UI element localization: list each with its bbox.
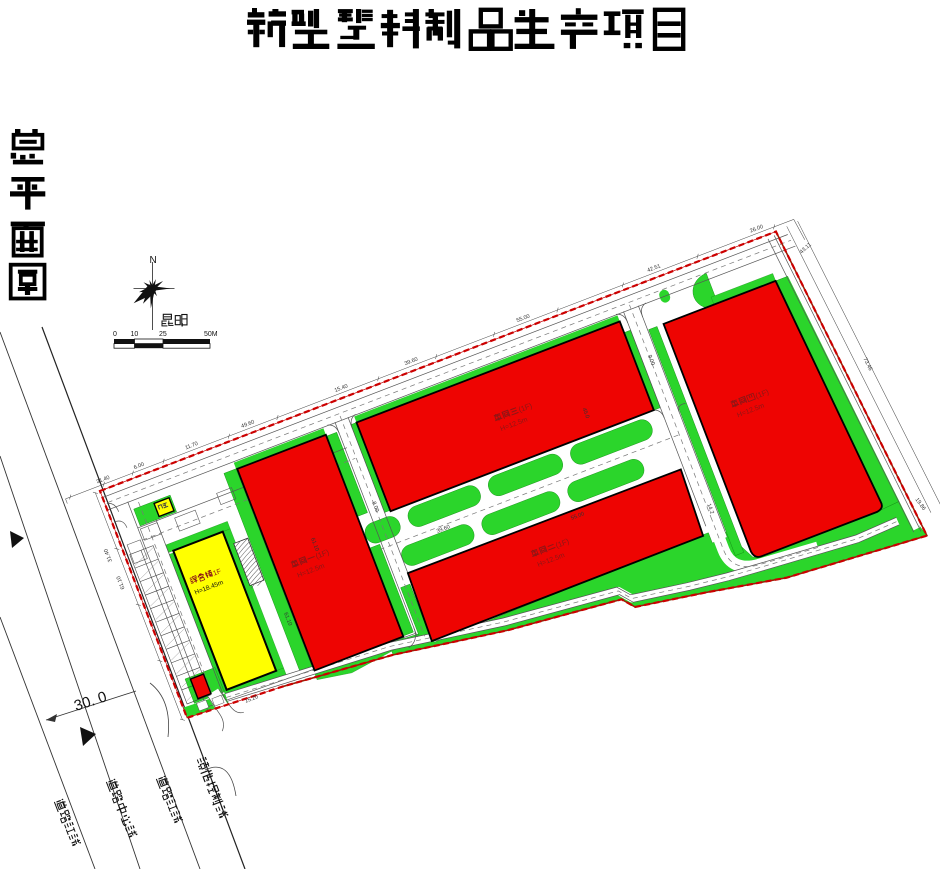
svg-text:0: 0 — [113, 331, 117, 338]
svg-text:N: N — [150, 255, 157, 266]
svg-text:10: 10 — [131, 331, 139, 338]
svg-text:50M: 50M — [204, 331, 218, 338]
svg-text:25: 25 — [159, 331, 167, 338]
